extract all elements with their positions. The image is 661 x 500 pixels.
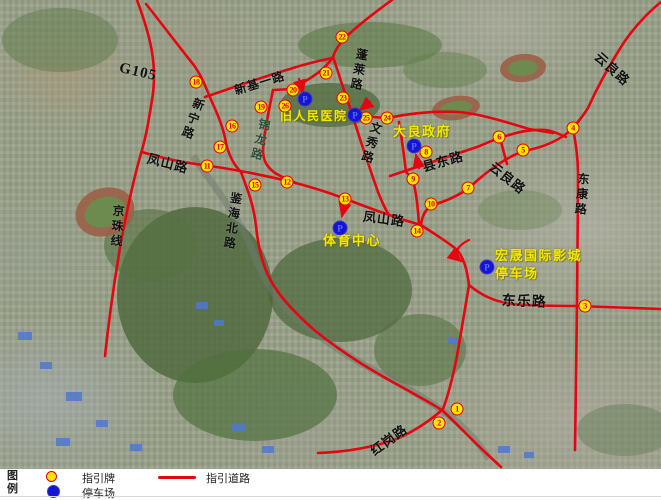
stadium: [499, 52, 547, 84]
legend-title-line1: 图: [7, 470, 18, 483]
guide-road: [333, 57, 389, 215]
guide-road: [421, 225, 469, 285]
guide-road: [573, 128, 578, 450]
legend-road-label: 指引道路: [206, 470, 250, 486]
guide-road: [399, 122, 419, 225]
stadium: [431, 93, 482, 123]
guide-sign-legend-icon: [46, 471, 57, 482]
satellite-map: G105新宁路新基一路锦龙路蓬莱路文秀路凤山路凤山路县东路云良路云良路东康路东乐…: [0, 0, 661, 469]
guide-road: [146, 4, 241, 172]
guide-road: [469, 285, 661, 309]
guide-road-legend-icon: [158, 476, 196, 479]
map-decor: [2, 8, 661, 459]
map-canvas: [0, 0, 661, 469]
legend-title: 图 例: [7, 470, 18, 496]
legend-sign-label: 指引牌: [82, 470, 115, 486]
guide-road: [390, 130, 566, 176]
legend: 图 例 指引牌 指引道路 停车场: [0, 469, 661, 500]
map-screenshot: G105新宁路新基一路锦龙路蓬莱路文秀路凤山路凤山路县东路云良路云良路东康路东乐…: [0, 0, 661, 500]
route-arrow: [342, 203, 345, 216]
legend-parking-label: 停车场: [82, 485, 115, 500]
legend-divider: [0, 496, 661, 497]
legend-title-line2: 例: [7, 483, 18, 496]
